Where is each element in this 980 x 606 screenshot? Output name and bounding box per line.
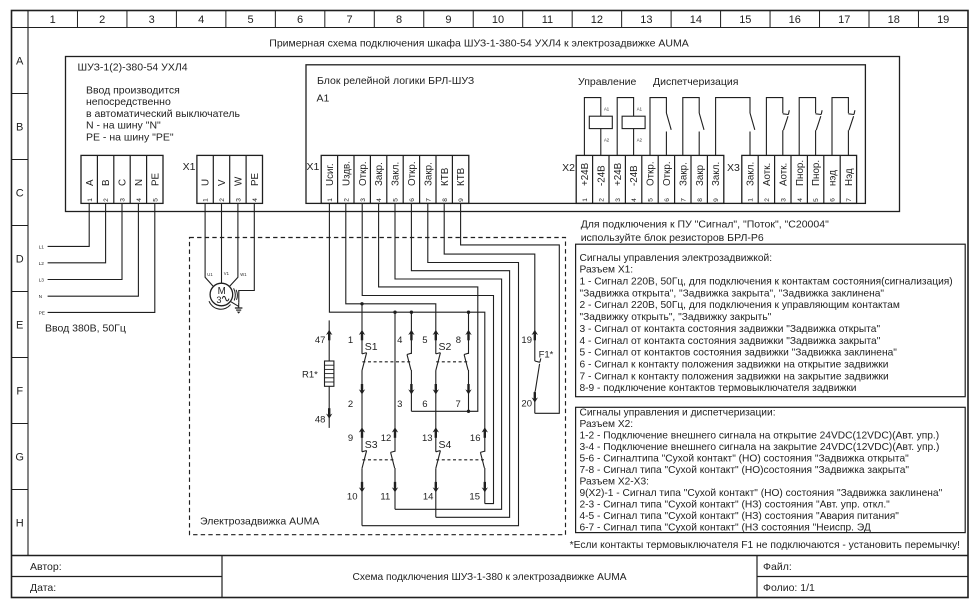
svg-text:3: 3 bbox=[780, 198, 787, 202]
svg-text:8-9 - подключение контактов те: 8-9 - подключение контактов термовыключа… bbox=[580, 383, 857, 394]
svg-text:15: 15 bbox=[469, 492, 480, 503]
svg-text:Закр.: Закр. bbox=[374, 162, 385, 186]
svg-text:4 - Сигнал от контакта состоян: 4 - Сигнал от контакта состояния задвижк… bbox=[580, 336, 881, 347]
svg-text:L2: L2 bbox=[39, 261, 45, 267]
svg-text:С: С bbox=[118, 179, 129, 186]
svg-text:S3: S3 bbox=[365, 439, 378, 451]
svg-text:8: 8 bbox=[442, 198, 449, 202]
svg-text:3: 3 bbox=[615, 198, 622, 202]
svg-text:3: 3 bbox=[236, 198, 243, 202]
svg-text:5-6 - Сигналтипа "Сухой контак: 5-6 - Сигналтипа "Сухой контакт" (НО) со… bbox=[580, 454, 910, 465]
svg-text:12: 12 bbox=[591, 14, 603, 26]
svg-text:Фолио: 1/1: Фолио: 1/1 bbox=[763, 582, 815, 594]
svg-text:Сигналы управления и диспетчер: Сигналы управления и диспетчеризации: bbox=[580, 408, 776, 419]
svg-text:48: 48 bbox=[315, 415, 326, 426]
svg-text:"Задвижку открыть", "Задвижку: "Задвижку открыть", "Задвижку закрыть" bbox=[580, 312, 772, 323]
svg-text:Электрозадвижка AUMA: Электрозадвижка AUMA bbox=[200, 516, 319, 528]
svg-text:Пнор.: Пнор. bbox=[795, 160, 806, 186]
svg-text:X2: X2 bbox=[562, 162, 575, 174]
svg-text:3: 3 bbox=[397, 399, 402, 410]
svg-text:7: 7 bbox=[346, 14, 352, 26]
svg-text:Диспетчеризация: Диспетчеризация bbox=[653, 76, 738, 88]
svg-text:-24В: -24В bbox=[596, 165, 607, 186]
svg-text:Откр.: Откр. bbox=[646, 161, 657, 186]
svg-text:6-7 - Сигнал типа "Сухой конта: 6-7 - Сигнал типа "Сухой контакт" (НЗ со… bbox=[580, 523, 871, 534]
svg-text:PE: PE bbox=[39, 310, 45, 316]
svg-text:7 - Сигнал к контакту положени: 7 - Сигнал к контакту положения задвижки… bbox=[580, 371, 889, 382]
svg-text:F: F bbox=[16, 386, 23, 398]
svg-text:9: 9 bbox=[445, 14, 451, 26]
svg-text:Ввод производится: Ввод производится bbox=[86, 85, 180, 97]
svg-text:7: 7 bbox=[456, 399, 461, 410]
svg-text:Uсиг.: Uсиг. bbox=[325, 163, 336, 186]
svg-text:PE: PE bbox=[150, 172, 161, 186]
svg-text:Автор:: Автор: bbox=[30, 561, 62, 573]
svg-text:4: 4 bbox=[397, 335, 402, 346]
svg-text:5: 5 bbox=[422, 335, 427, 346]
svg-text:N: N bbox=[39, 294, 43, 300]
svg-text:Разъем X2:: Разъем X2: bbox=[580, 419, 634, 430]
svg-text:2: 2 bbox=[764, 198, 771, 202]
svg-text:4: 4 bbox=[797, 198, 804, 202]
svg-text:16: 16 bbox=[789, 14, 801, 26]
svg-text:1: 1 bbox=[582, 198, 589, 202]
svg-text:7: 7 bbox=[680, 198, 687, 202]
svg-text:"Задвижка открыта", "Задвижка: "Задвижка открыта", "Задвижка закрыта", … bbox=[580, 288, 885, 299]
svg-text:Uздв.: Uздв. bbox=[341, 161, 352, 186]
svg-text:*Если контакты термовыключател: *Если контакты термовыключателя F1 не по… bbox=[570, 540, 960, 551]
svg-text:3: 3 bbox=[120, 198, 127, 202]
svg-text:Аотк.: Аотк. bbox=[762, 163, 773, 186]
svg-text:3: 3 bbox=[216, 295, 221, 305]
svg-text:Разъем X1:: Разъем X1: bbox=[580, 265, 634, 276]
svg-text:Схема подключения ШУЗ-1-380 к: Схема подключения ШУЗ-1-380 к электрозад… bbox=[352, 572, 626, 583]
svg-text:10: 10 bbox=[347, 492, 358, 503]
svg-text:Пнор.: Пнор. bbox=[811, 160, 822, 186]
svg-text:A1: A1 bbox=[604, 107, 610, 112]
svg-text:4: 4 bbox=[631, 198, 638, 202]
svg-text:7: 7 bbox=[846, 198, 853, 202]
svg-text:6: 6 bbox=[422, 399, 427, 410]
svg-text:15: 15 bbox=[739, 14, 751, 26]
svg-text:9: 9 bbox=[348, 433, 353, 444]
svg-text:Закр.: Закр. bbox=[423, 162, 434, 186]
svg-text:11: 11 bbox=[380, 492, 390, 503]
svg-text:14: 14 bbox=[690, 14, 702, 26]
svg-text:в автоматический выключатель: в автоматический выключатель bbox=[86, 108, 241, 120]
svg-text:В: В bbox=[101, 179, 112, 186]
svg-text:5: 5 bbox=[152, 198, 159, 202]
svg-text:A1: A1 bbox=[317, 93, 330, 105]
svg-text:Управление: Управление bbox=[578, 76, 637, 88]
svg-text:Закр.: Закр. bbox=[678, 162, 689, 186]
svg-text:9(X2)-1 - Сигнал типа "Сухой к: 9(X2)-1 - Сигнал типа "Сухой контакт" (Н… bbox=[580, 488, 943, 499]
svg-text:3 - Сигнал от контакта состоян: 3 - Сигнал от контакта состояния задвижк… bbox=[580, 324, 881, 335]
svg-text:V1: V1 bbox=[224, 271, 230, 276]
svg-text:9: 9 bbox=[713, 198, 720, 202]
svg-text:A2: A2 bbox=[637, 138, 643, 143]
svg-text:Аотк.: Аотк. bbox=[778, 163, 789, 186]
svg-text:4: 4 bbox=[198, 14, 204, 26]
svg-text:2: 2 bbox=[219, 198, 226, 202]
svg-text:Откр.: Откр. bbox=[358, 161, 369, 186]
svg-text:6: 6 bbox=[409, 198, 416, 202]
svg-text:Блок релейной логики БРЛ-ШУЗ: Блок релейной логики БРЛ-ШУЗ bbox=[317, 75, 474, 87]
svg-text:нэд: нэд bbox=[828, 170, 839, 186]
svg-text:12: 12 bbox=[381, 433, 392, 444]
svg-text:6 - Сигнал к контакту положени: 6 - Сигнал к контакту положения задвижки… bbox=[580, 359, 889, 370]
svg-text:используйте блок резисторов БР: используйте блок резисторов БРЛ-Р6 bbox=[581, 232, 764, 244]
svg-text:8: 8 bbox=[456, 335, 461, 346]
svg-text:18: 18 bbox=[888, 14, 900, 26]
svg-text:11: 11 bbox=[542, 14, 553, 26]
svg-text:КТВ: КТВ bbox=[440, 167, 451, 186]
svg-text:R1*: R1* bbox=[302, 370, 318, 381]
svg-text:13: 13 bbox=[640, 14, 652, 26]
svg-text:H: H bbox=[16, 518, 24, 530]
svg-text:4: 4 bbox=[376, 198, 383, 202]
svg-text:L1: L1 bbox=[39, 244, 45, 250]
svg-text:Для подключения к ПУ "Сигнал",: Для подключения к ПУ "Сигнал", "Поток", … bbox=[581, 219, 829, 231]
svg-text:Разъем X2-X3:: Разъем X2-X3: bbox=[580, 477, 649, 488]
svg-text:Откр.: Откр. bbox=[407, 161, 418, 186]
svg-text:2 - Сигнал 220В, 50Гц, для под: 2 - Сигнал 220В, 50Гц, для подключения к… bbox=[580, 300, 900, 311]
svg-text:S1: S1 bbox=[365, 341, 378, 353]
svg-text:X1: X1 bbox=[307, 161, 320, 173]
svg-text:N: N bbox=[134, 179, 145, 186]
svg-text:PE: PE bbox=[250, 172, 261, 186]
svg-text:5: 5 bbox=[248, 14, 254, 26]
svg-text:20: 20 bbox=[521, 399, 532, 410]
svg-text:4: 4 bbox=[136, 198, 143, 202]
svg-text:C: C bbox=[16, 188, 24, 200]
svg-text:G: G bbox=[15, 452, 24, 464]
svg-text:Сигналы управления электрозадв: Сигналы управления электрозадвижкой: bbox=[580, 253, 773, 264]
svg-text:S2: S2 bbox=[439, 341, 452, 353]
svg-text:V: V bbox=[217, 179, 228, 186]
svg-text:Закл.: Закл. bbox=[711, 162, 722, 186]
svg-text:E: E bbox=[16, 320, 23, 332]
svg-text:непосредственно: непосредственно bbox=[86, 96, 171, 108]
svg-text:1: 1 bbox=[50, 14, 56, 26]
svg-text:2: 2 bbox=[598, 198, 605, 202]
svg-text:8: 8 bbox=[697, 198, 704, 202]
svg-text:6: 6 bbox=[297, 14, 303, 26]
svg-text:A1: A1 bbox=[637, 107, 643, 112]
svg-text:W: W bbox=[234, 176, 245, 186]
svg-text:Ввод 380В, 50Гц: Ввод 380В, 50Гц bbox=[45, 323, 126, 335]
svg-text:7-8 - Сигнал типа "Сухой конта: 7-8 - Сигнал типа "Сухой контакт" (НО)со… bbox=[580, 465, 910, 476]
svg-text:F1*: F1* bbox=[539, 350, 554, 361]
svg-text:9: 9 bbox=[458, 198, 465, 202]
svg-text:1 - Сигнал 220В, 50Гц, для под: 1 - Сигнал 220В, 50Гц, для подключения к… bbox=[580, 277, 953, 288]
svg-text:16: 16 bbox=[470, 433, 481, 444]
svg-text:2: 2 bbox=[348, 399, 353, 410]
svg-text:10: 10 bbox=[492, 14, 504, 26]
svg-text:Закл.: Закл. bbox=[391, 162, 402, 186]
svg-text:13: 13 bbox=[422, 433, 433, 444]
svg-text:U1: U1 bbox=[207, 272, 213, 277]
svg-text:1: 1 bbox=[327, 198, 334, 202]
svg-text:5: 5 bbox=[648, 198, 655, 202]
svg-text:2: 2 bbox=[99, 14, 105, 26]
svg-text:19: 19 bbox=[521, 335, 532, 346]
svg-text:D: D bbox=[16, 254, 24, 266]
svg-text:5 - Сигнал от контактов состоя: 5 - Сигнал от контактов состояния задвиж… bbox=[580, 348, 898, 359]
svg-text:4-5 - Сигнал типа "Сухой конта: 4-5 - Сигнал типа "Сухой контакт" (НЗ) с… bbox=[580, 511, 900, 522]
svg-text:6: 6 bbox=[830, 198, 837, 202]
svg-text:2-3 - Сигнал типа "Сухой конта: 2-3 - Сигнал типа "Сухой контакт" (НЗ) с… bbox=[580, 500, 891, 511]
svg-text:ШУЗ-1(2)-380-54 УХЛ4: ШУЗ-1(2)-380-54 УХЛ4 bbox=[78, 62, 188, 74]
svg-text:3: 3 bbox=[360, 198, 367, 202]
svg-text:-24В: -24В bbox=[629, 165, 640, 186]
svg-text:3-4 - Подключение внешнего сиг: 3-4 - Подключение внешнего сигнала на за… bbox=[580, 442, 940, 453]
svg-text:1: 1 bbox=[203, 198, 210, 202]
svg-text:L3: L3 bbox=[39, 278, 45, 284]
svg-text:4: 4 bbox=[252, 198, 259, 202]
svg-text:A2: A2 bbox=[604, 138, 610, 143]
svg-text:X3: X3 bbox=[727, 162, 740, 174]
svg-text:1: 1 bbox=[348, 335, 353, 346]
svg-text:1: 1 bbox=[87, 198, 94, 202]
svg-text:Файл:: Файл: bbox=[763, 561, 792, 573]
svg-text:6: 6 bbox=[664, 198, 671, 202]
svg-text:1-2 - Подключение внешнего сиг: 1-2 - Подключение внешнего сигнала на от… bbox=[580, 431, 940, 442]
svg-text:8: 8 bbox=[396, 14, 402, 26]
svg-text:7: 7 bbox=[425, 198, 432, 202]
svg-text:Нэд: Нэд bbox=[844, 168, 855, 186]
svg-text:2: 2 bbox=[343, 198, 350, 202]
svg-text:2: 2 bbox=[103, 198, 110, 202]
svg-text:17: 17 bbox=[838, 14, 850, 26]
svg-text:Закл.: Закл. bbox=[746, 162, 757, 186]
svg-text:+24В: +24В bbox=[613, 162, 624, 186]
svg-text:1: 1 bbox=[748, 198, 755, 202]
svg-text:5: 5 bbox=[813, 198, 820, 202]
svg-text:КТВ: КТВ bbox=[456, 167, 467, 186]
svg-text:Откр.: Откр. bbox=[662, 161, 673, 186]
svg-text:14: 14 bbox=[423, 492, 434, 503]
svg-text:3: 3 bbox=[149, 14, 155, 26]
svg-text:U: U bbox=[201, 179, 212, 186]
svg-text:X1: X1 bbox=[183, 161, 196, 173]
svg-text:S4: S4 bbox=[439, 439, 452, 451]
svg-text:Закр: Закр bbox=[695, 164, 706, 186]
svg-text:N - на шину "N": N - на шину "N" bbox=[86, 120, 161, 132]
svg-text:A: A bbox=[16, 56, 24, 68]
svg-text:5: 5 bbox=[393, 198, 400, 202]
svg-text:А: А bbox=[85, 179, 96, 186]
svg-text:Дата:: Дата: bbox=[30, 582, 56, 594]
svg-text:PE - на шину "PE": PE - на шину "PE" bbox=[86, 131, 174, 143]
svg-text:47: 47 bbox=[315, 335, 326, 346]
svg-text:B: B bbox=[16, 122, 23, 134]
svg-text:W1: W1 bbox=[240, 272, 247, 277]
svg-text:Примерная схема подключения шк: Примерная схема подключения шкафа ШУЗ-1-… bbox=[269, 38, 688, 50]
svg-text:+24В: +24В bbox=[580, 162, 591, 186]
svg-text:19: 19 bbox=[937, 14, 949, 26]
